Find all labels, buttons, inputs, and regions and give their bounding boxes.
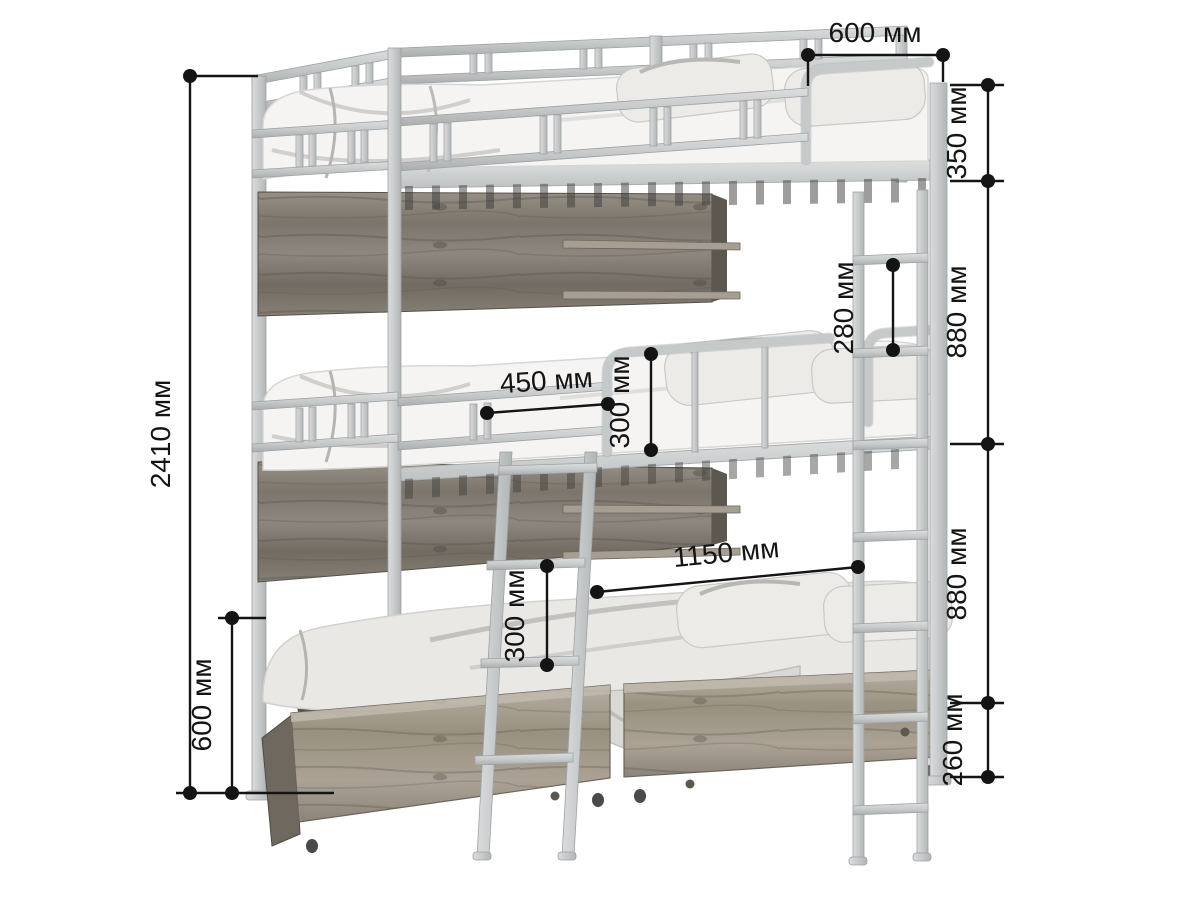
dim-drawer-section-height: 260 мм xyxy=(937,694,1004,787)
caster-wheel-2 xyxy=(592,793,604,807)
drawer-right-knob-2 xyxy=(901,728,910,737)
dim-upper-tier-spacing: 880 мм xyxy=(941,181,1004,451)
dim-top-rail-height-label: 350 мм xyxy=(941,87,972,180)
dim-right-ladder-step-label: 280 мм xyxy=(828,262,859,355)
caster-wheel-3 xyxy=(634,789,646,803)
top-rail-side xyxy=(252,48,401,85)
dim-drawer-section-height-label: 260 мм xyxy=(937,694,968,787)
drawer-right xyxy=(624,670,936,789)
dim-bed-width-top-label: 600 мм xyxy=(829,17,922,48)
dim-guard-rail-length-label: 450 мм xyxy=(499,362,594,399)
dim-upper-tier-spacing-label: 880 мм xyxy=(941,266,972,359)
dim-top-rail-height: 350 мм xyxy=(941,78,1004,188)
drawer-right-knob-1 xyxy=(686,780,695,789)
panel-upper-shelf-2 xyxy=(563,291,740,299)
right-ladder xyxy=(849,190,931,865)
wood-panel-upper xyxy=(258,192,740,316)
dim-under-bed-clearance-label: 600 мм xyxy=(186,659,217,752)
dim-guard-rail-height-label: 300 мм xyxy=(604,356,635,449)
dim-lower-tier-spacing-label: 880 мм xyxy=(941,528,972,621)
product-dimension-image: 600 мм 350 мм 880 мм 880 мм 260 мм xyxy=(0,0,1200,900)
dim-guard-rail-height: 300 мм xyxy=(604,347,658,457)
dim-total-height-label: 2410 мм xyxy=(145,380,176,489)
dim-lower-tier-spacing: 880 мм xyxy=(941,444,1004,710)
front-left-post xyxy=(388,48,401,712)
caster-wheel-1 xyxy=(306,839,318,853)
right-ladder-rail-right xyxy=(917,190,928,856)
right-front-post xyxy=(930,83,947,780)
dim-front-ladder-step-label: 300 мм xyxy=(499,570,530,663)
drawer-left-knob xyxy=(551,792,560,801)
bunk-bed-drawing: 600 мм 350 мм 880 мм 880 мм 260 мм xyxy=(0,0,1200,900)
